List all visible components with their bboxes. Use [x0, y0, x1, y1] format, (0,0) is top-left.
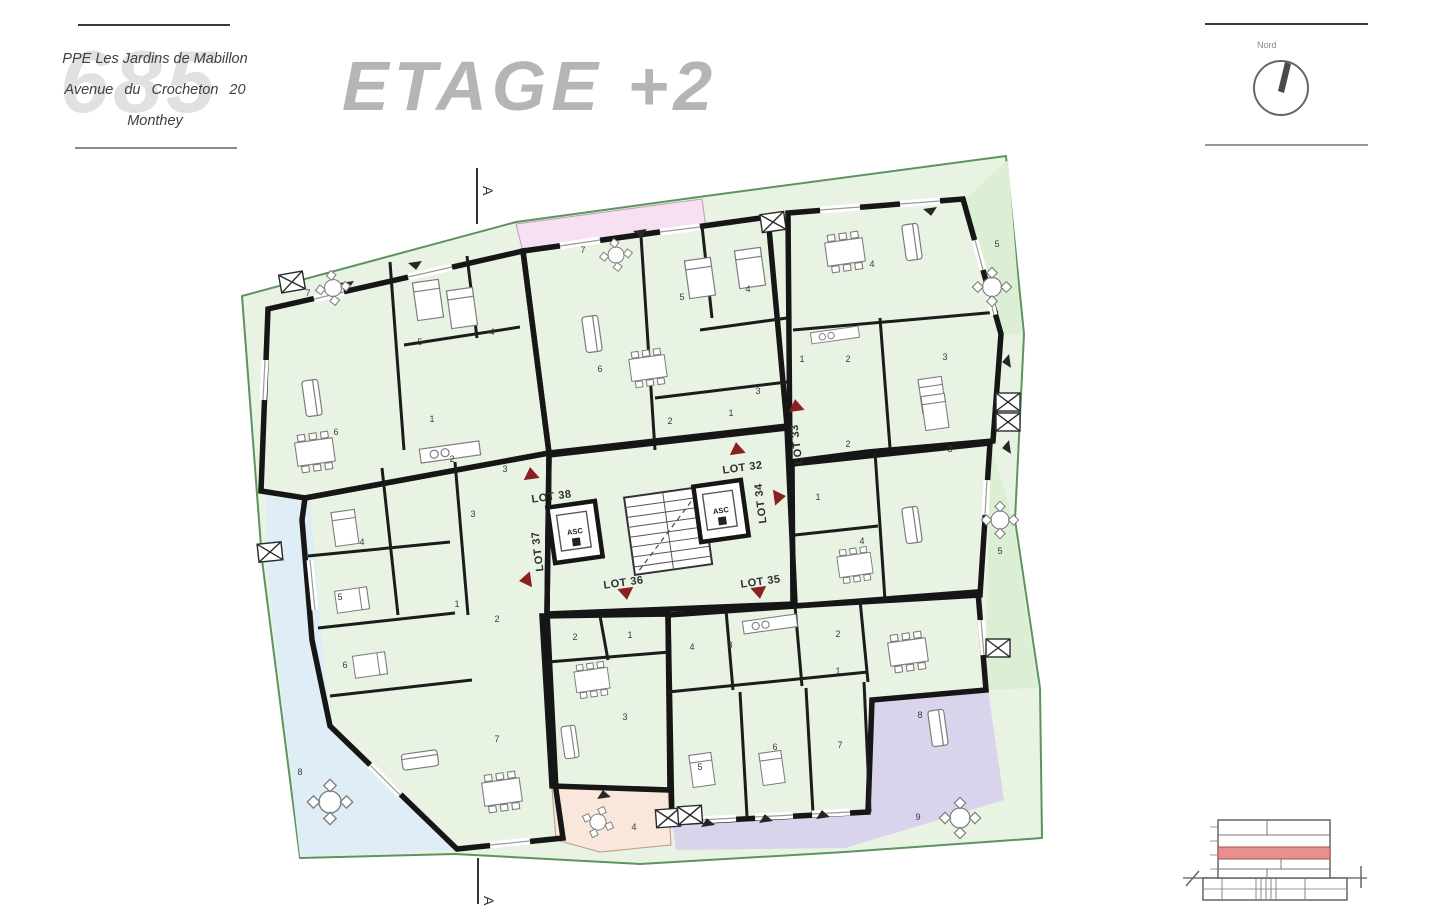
room-num: 4 [489, 327, 494, 337]
room-num: 2 [572, 632, 577, 642]
room-num: 6 [597, 364, 602, 374]
elevator-right: ASC [693, 480, 748, 542]
floor-plan-sheet: 685 PPE Les Jardins de Mabillon Avenue d… [0, 0, 1440, 915]
room-num: 4 [631, 822, 636, 832]
room-num: 1 [454, 599, 459, 609]
room-num: 4 [859, 536, 864, 546]
room-num: 4 [689, 642, 694, 652]
room-num: 9 [915, 812, 920, 822]
room-num: 7 [305, 288, 310, 298]
room-num: 3 [942, 352, 947, 362]
room-num: 1 [815, 492, 820, 502]
room-num: 5 [994, 239, 999, 249]
section-letter-top: A [480, 186, 496, 196]
room-num: 3 [502, 464, 507, 474]
room-num: 7 [494, 734, 499, 744]
room-num: 1 [835, 666, 840, 676]
room-num: 3 [470, 509, 475, 519]
room-num: 5 [997, 546, 1002, 556]
room-num: 7 [580, 245, 585, 255]
room-num: 6 [342, 660, 347, 670]
room-num: 1 [728, 408, 733, 418]
room-num: 3 [727, 640, 732, 650]
room-num: 1 [627, 630, 632, 640]
room-num: 6 [772, 742, 777, 752]
building-elevation-icon [1183, 820, 1367, 900]
room-num: 3 [947, 444, 952, 454]
room-num: 2 [835, 629, 840, 639]
section-marker-top: A [477, 168, 496, 224]
section-letter-bottom: A [481, 896, 497, 906]
room-num: 4 [869, 259, 874, 269]
room-num: 4 [745, 284, 750, 294]
terrace-salmon-patch [552, 788, 671, 852]
room-num: 2 [449, 454, 454, 464]
room-num: 8 [917, 710, 922, 720]
room-num: 2 [667, 416, 672, 426]
room-num: 7 [837, 740, 842, 750]
title-block-text: PPE Les Jardins de Mabillon Avenue du Cr… [40, 44, 270, 137]
room-num: 2 [845, 439, 850, 449]
room-num: 2 [494, 614, 499, 624]
page-title: ETAGE +2 [342, 46, 717, 126]
room-num: 3 [622, 712, 627, 722]
project-address: Avenue du Crocheton 20 [40, 75, 270, 106]
room-num: 1 [799, 354, 804, 364]
room-num: 5 [337, 592, 342, 602]
floor-plan-drawing: ASC ASC [0, 0, 1440, 915]
room-num: 3 [755, 386, 760, 396]
room-num: 5 [679, 292, 684, 302]
room-num: 1 [429, 414, 434, 424]
room-num: 5 [417, 337, 422, 347]
room-num: 4 [359, 537, 364, 547]
room-num: 6 [333, 427, 338, 437]
highlighted-floor-band [1218, 847, 1330, 859]
project-city: Monthey [40, 106, 270, 137]
project-name: PPE Les Jardins de Mabillon [40, 44, 270, 75]
room-num: 5 [697, 762, 702, 772]
room-num: 8 [297, 767, 302, 777]
section-marker-bottom: A [478, 858, 497, 906]
room-num: 2 [845, 354, 850, 364]
elevator-left: ASC [547, 501, 602, 563]
